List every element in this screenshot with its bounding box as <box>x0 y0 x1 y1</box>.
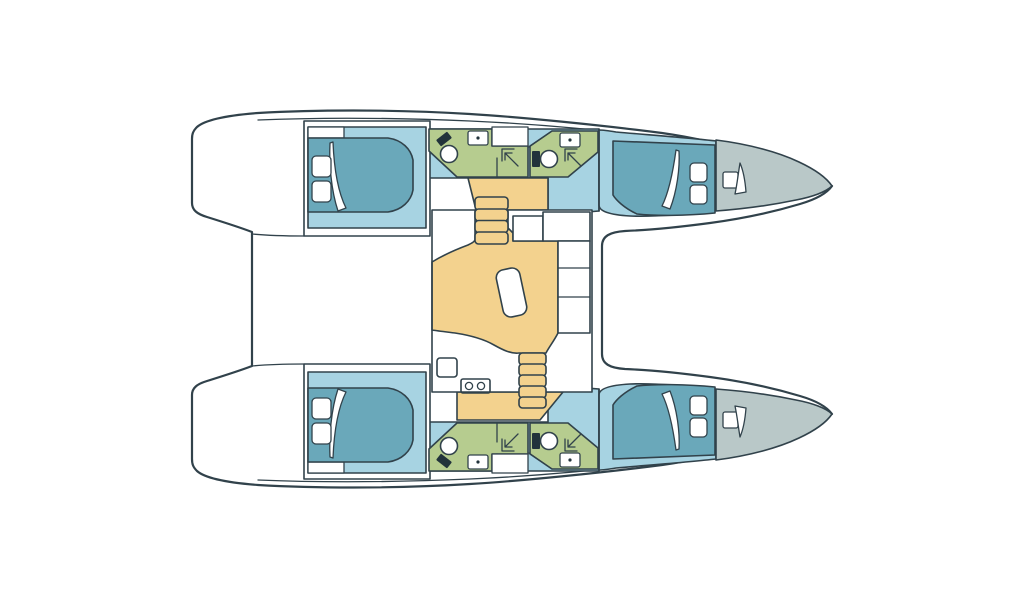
stair-step <box>519 397 546 408</box>
upper-aft-pillow-2 <box>312 181 331 202</box>
sink-drain-icon <box>568 458 571 461</box>
lower-forward-pillow-2 <box>690 418 707 437</box>
upper-aft-pillow-1 <box>312 156 331 177</box>
stair-step <box>475 209 508 221</box>
lower-aft-pillow-1 <box>312 398 331 419</box>
lower-aft-pillow-2 <box>312 423 331 444</box>
upper-heads-locker <box>492 127 528 146</box>
upper-aft-cabin-locker <box>308 127 344 138</box>
companionway-stairs-lower <box>519 353 546 408</box>
toilet-icon <box>541 433 558 450</box>
sink-drain-icon <box>568 138 571 141</box>
upper-forward-pillow-2 <box>690 185 707 204</box>
sink-drain-icon <box>476 136 479 139</box>
salon-settee-forward-left <box>513 216 543 241</box>
galley-sink-bowl-2 <box>477 382 484 389</box>
lower-aft-cabin-locker <box>308 462 344 473</box>
lower-forward-pillow-1 <box>690 396 707 415</box>
stair-step <box>475 221 508 233</box>
galley-sink-bowl-1 <box>465 382 472 389</box>
salon-settee-side <box>558 241 590 333</box>
toilet-tank-icon <box>532 433 540 449</box>
salon-settee-forward-right <box>543 212 590 241</box>
sink-drain-icon <box>476 460 479 463</box>
toilet-icon <box>441 146 458 163</box>
toilet-icon <box>541 151 558 168</box>
upper-forward-pillow-1 <box>690 163 707 182</box>
stair-step <box>475 197 508 210</box>
upper-forepeak-hatch <box>723 172 738 188</box>
toilet-icon <box>441 438 458 455</box>
stair-step <box>475 232 508 244</box>
toilet-tank-icon <box>532 151 540 167</box>
lower-forepeak-hatch <box>723 412 738 428</box>
galley-fridge-locker <box>437 358 457 377</box>
catamaran-floorplan <box>0 0 1024 600</box>
companionway-stairs-upper <box>475 197 508 244</box>
salon <box>432 197 592 408</box>
lower-heads-locker <box>492 454 528 473</box>
floorplan-svg <box>0 0 1024 600</box>
